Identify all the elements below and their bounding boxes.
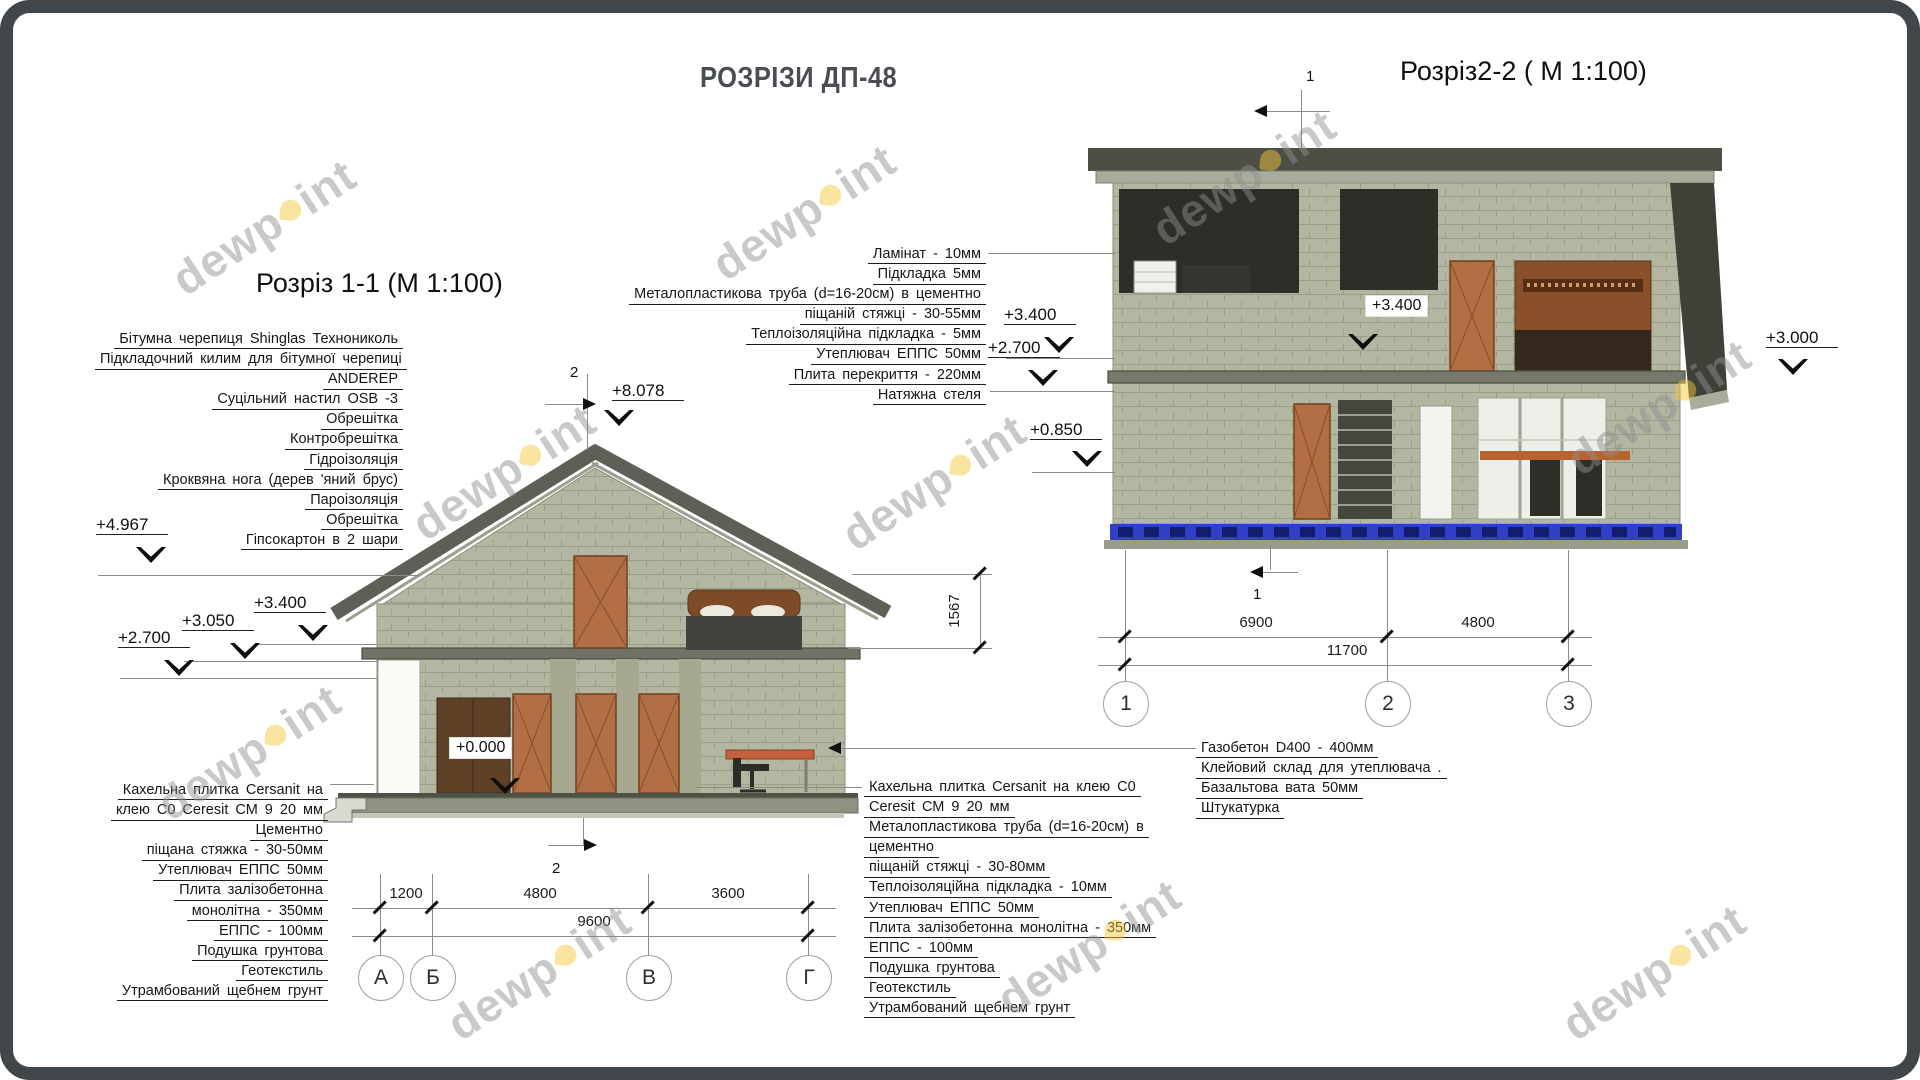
axis-bubble: В <box>626 955 672 1001</box>
elevation-label: +2.700 <box>118 628 190 648</box>
step-symbol <box>324 798 366 822</box>
axis-bubble: 2 <box>1365 681 1411 727</box>
layer-item: Геотекстиль <box>236 963 328 981</box>
layer-item: цементно <box>864 839 939 857</box>
leader-line <box>836 748 1196 749</box>
cut-mark-label: 2 <box>552 860 560 877</box>
layer-item: Утеплювач ЕППС 50мм <box>153 862 328 880</box>
dimension-line <box>352 908 836 909</box>
layer-item: Кахельна плитка Cersanit на клею C0 <box>864 779 1141 797</box>
dim-value: 11700 <box>1315 642 1379 659</box>
layer-item: Подушка грунтова <box>864 960 1000 978</box>
layer-item: Обрешітка <box>321 512 403 530</box>
cut-line <box>1262 111 1330 112</box>
extension-line <box>648 874 649 955</box>
layer-item: піщана стяжка - 30-50мм <box>142 842 328 860</box>
layer-item: Підкладка 5мм <box>873 266 986 284</box>
floor-layers-list-1: Кахельна плитка Cersanit на клею C0 Cere… <box>58 782 328 1003</box>
layer-item: Утеплювач ЕППС 50мм <box>811 346 986 364</box>
elevation-label: +3.400 <box>254 593 326 613</box>
layer-item: Плита залізобетонна монолітна - 350мм <box>864 920 1156 938</box>
axis-label: 3 <box>1563 692 1575 716</box>
leader-line <box>120 678 378 679</box>
dim-value: 6900 <box>1224 614 1288 631</box>
layer-item: Бітумна черепиця Shinglas Технониколь <box>114 331 403 349</box>
layer-item: Газобетон D400 - 400мм <box>1196 740 1378 758</box>
leader-line <box>695 787 862 788</box>
layer-item: Гіпсокартон в 2 шари <box>241 532 403 550</box>
axis-label: А <box>374 966 388 990</box>
layer-item: Теплоізоляційна підкладка - 5мм <box>746 326 986 344</box>
axis-bubble: А <box>358 955 404 1001</box>
layer-item: Натяжна стеля <box>873 387 986 405</box>
cut-line <box>583 818 584 845</box>
axis-bubble: Б <box>410 955 456 1001</box>
layer-item: ЕППС - 100мм <box>864 940 978 958</box>
axis-label: Г <box>803 966 814 990</box>
elevation-label: +0.000 <box>450 738 511 758</box>
layer-item: Пароізоляція <box>305 492 403 510</box>
window-opening <box>1340 189 1438 290</box>
dim-value: 9600 <box>562 913 626 930</box>
dimension-line <box>352 936 836 937</box>
layer-item: Утеплювач ЕППС 50мм <box>864 900 1039 918</box>
flat-roof <box>1088 148 1722 171</box>
drawing-sheet: РОЗРІЗИ ДП-48 Розріз 1-1 (М 1:100) Розрі… <box>0 0 1920 1080</box>
house-1-1 <box>324 450 888 822</box>
bed-2f <box>1182 265 1250 293</box>
attic-door <box>574 556 627 648</box>
foundation-strip <box>1104 524 1688 549</box>
layer-item: Базальтова вата 50мм <box>1196 780 1363 798</box>
axis-label: 2 <box>1382 692 1394 716</box>
axis-bubble: 1 <box>1103 681 1149 727</box>
layer-item: ЕППС - 100мм <box>214 923 328 941</box>
elevation-label: +3.050 <box>182 611 254 631</box>
staircase <box>1338 400 1392 519</box>
ground-slab <box>338 793 858 818</box>
cut-mark-label: 1 <box>1253 586 1261 603</box>
layer-item: Підкладочний килим для бітумної черепиці <box>95 351 407 369</box>
door <box>639 694 679 793</box>
bed-headboard <box>1515 261 1651 370</box>
door <box>576 694 616 793</box>
layer-item: монолітна - 350мм <box>187 903 328 921</box>
leader-line <box>988 253 1115 254</box>
cut-line <box>548 845 586 846</box>
extension-line <box>848 648 992 649</box>
layer-item: Плита перекриття - 220мм <box>789 367 986 385</box>
layer-item: Цементно <box>250 822 328 840</box>
layer-item: піщаній стяжці - 30-80мм <box>864 859 1050 877</box>
layer-item: ANDEREP <box>323 371 403 389</box>
layer-item: Утрамбований щебнем грунт <box>117 983 328 1001</box>
door <box>1294 404 1330 519</box>
attic-bed <box>686 590 802 650</box>
layer-item: Обрешітка <box>321 411 403 429</box>
layer-item: Подушка грунтова <box>192 943 328 961</box>
layer-item: Суцільний настил OSB -3 <box>212 391 403 409</box>
layer-item: Металопластикова труба (d=16-20см) в цем… <box>629 286 986 304</box>
layer-item: Ceresit СМ 9 20 мм <box>864 799 1015 817</box>
leader-line <box>1032 472 1115 473</box>
axis-bubble: Г <box>786 955 832 1001</box>
layer-item: Ламінат - 10мм <box>868 246 986 264</box>
dim-value: 3600 <box>696 885 760 902</box>
leader-line <box>330 784 374 785</box>
dimension-line <box>1098 665 1592 666</box>
dim-value: 4800 <box>1446 614 1510 631</box>
leader-line <box>256 644 378 645</box>
dim-value: 4800 <box>508 885 572 902</box>
floor-layers-list-2: Кахельна плитка Cersanit на клею C0 Cere… <box>864 779 1234 1020</box>
layer-item: піщаній стяжці - 30-55мм <box>800 306 986 324</box>
layer-item: Контробрешітка <box>285 431 403 449</box>
elevation-label: +3.000 <box>1766 328 1838 348</box>
extension-line <box>808 874 809 955</box>
dimension-line <box>1098 637 1592 638</box>
dim-value: 1567 <box>946 574 963 648</box>
cut-mark-label: 2 <box>570 364 578 381</box>
axis-label: В <box>642 966 656 990</box>
dresser <box>1134 261 1176 293</box>
layer-item: Клейовий склад для утеплювача . <box>1196 760 1447 778</box>
cut-line <box>1301 90 1302 148</box>
wall-layers-list: Газобетон D400 - 400мм Клейовий склад дл… <box>1196 740 1536 820</box>
extension-line <box>852 574 992 575</box>
leader-line <box>1006 358 1115 359</box>
layer-item: Теплоізоляційна підкладка - 10мм <box>864 879 1112 897</box>
layer-item: Кахельна плитка Cersanit на <box>118 782 328 800</box>
cut-line <box>1270 542 1271 570</box>
house-2-2 <box>1088 148 1729 549</box>
layer-item: Утрамбований щебнем грунт <box>864 1000 1075 1018</box>
elevation-label: +4.967 <box>96 515 168 535</box>
porch-wall <box>378 660 420 794</box>
layer-item: Плита залізобетонна <box>174 882 328 900</box>
layer-item: клею C0 Ceresit СМ 9 20 мм <box>111 802 328 820</box>
layer-item: Штукатурка <box>1196 800 1284 818</box>
elevation-label: +3.400 <box>1366 296 1427 316</box>
axis-label: Б <box>426 966 440 990</box>
axis-bubble: 3 <box>1546 681 1592 727</box>
layer-item: Кроквяна нога (дерев 'яний брус) <box>158 472 403 490</box>
extension-line <box>1387 550 1388 681</box>
cabinet <box>1420 406 1452 519</box>
cut-line <box>1258 572 1298 573</box>
leader-line <box>990 391 1115 392</box>
elevation-label: +3.400 <box>1004 305 1076 325</box>
elevation-label: +8.078 <box>612 381 684 401</box>
layer-item: Металопластикова труба (d=16-20см) в <box>864 819 1149 837</box>
dimension-line <box>980 574 981 648</box>
leader-line <box>98 575 420 576</box>
door <box>1450 261 1494 371</box>
cut-mark-label: 1 <box>1306 68 1314 85</box>
axis-label: 1 <box>1120 692 1132 716</box>
layer-item: Геотекстиль <box>864 980 956 998</box>
layer-item: Гідроізоляція <box>304 452 403 470</box>
leader-line <box>184 661 378 662</box>
elevation-label: +0.850 <box>1030 420 1102 440</box>
